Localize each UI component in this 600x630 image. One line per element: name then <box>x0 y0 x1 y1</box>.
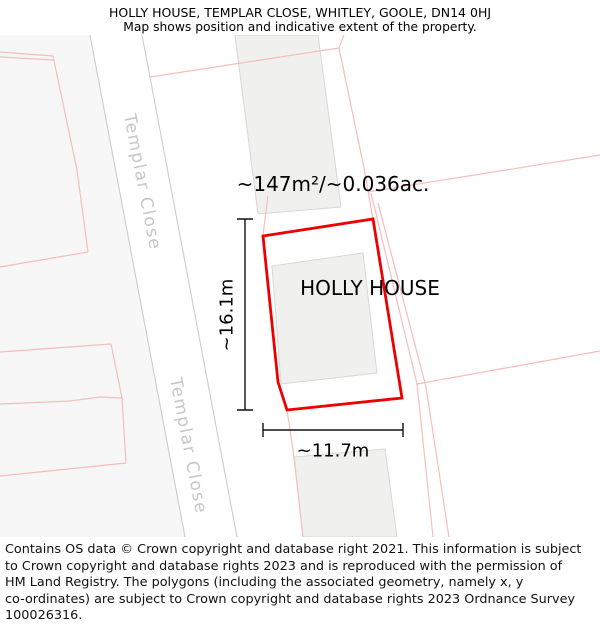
copyright-line: HM Land Registry. The polygons (includin… <box>0 575 600 592</box>
page-subtitle: Map shows position and indicative extent… <box>0 20 600 34</box>
height-dimension-label: ~16.1m <box>217 279 238 352</box>
width-dimension-label: ~11.7m <box>297 441 370 462</box>
map-header: HOLLY HOUSE, TEMPLAR CLOSE, WHITLEY, GOO… <box>0 0 600 35</box>
width-dimension-line <box>263 423 403 437</box>
building-south <box>294 449 397 537</box>
copyright-line: co-ordinates) are subject to Crown copyr… <box>0 592 600 609</box>
parcel-line-east <box>368 155 600 537</box>
copyright-notice: Contains OS data © Crown copyright and d… <box>0 537 600 630</box>
building-holly-house <box>272 253 377 384</box>
area-label: ~147m²/~0.036ac. <box>237 172 430 196</box>
copyright-line: to Crown copyright and database rights 2… <box>0 559 600 576</box>
property-map: Templar Close Templar Close ~147m²/~0.03… <box>0 0 600 625</box>
roadside-area <box>0 35 185 537</box>
copyright-line: Contains OS data © Crown copyright and d… <box>0 542 600 559</box>
property-name-label: HOLLY HOUSE <box>300 276 440 300</box>
page-title: HOLLY HOUSE, TEMPLAR CLOSE, WHITLEY, GOO… <box>0 0 600 20</box>
copyright-line: 100026316. <box>0 608 600 625</box>
map-svg <box>0 0 600 625</box>
height-dimension-line <box>237 219 253 410</box>
